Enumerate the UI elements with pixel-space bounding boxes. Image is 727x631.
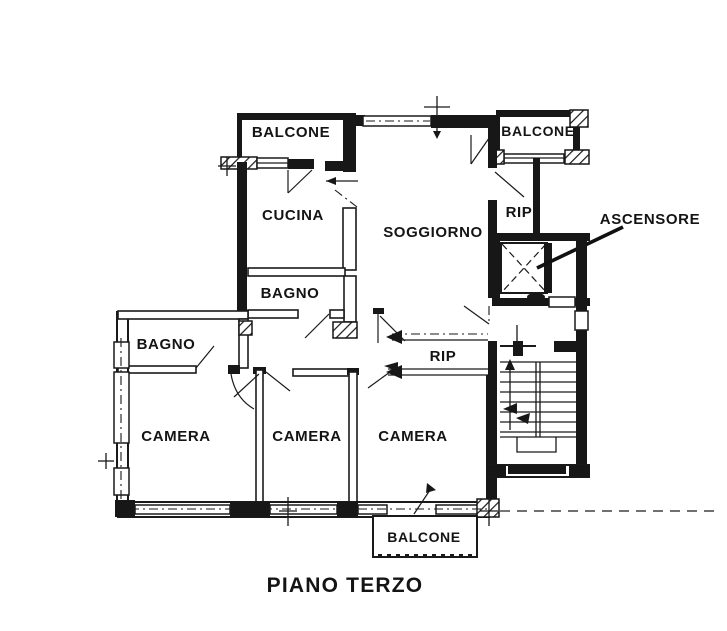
floorplan-drawing: ASCENSORE: [0, 0, 727, 631]
soggiorno-top-wall: [343, 113, 498, 172]
camera-right-label: CAMERA: [378, 428, 447, 445]
stair-direction-arrow: [503, 359, 530, 430]
survey-mark-left-wall: [98, 453, 114, 469]
entrance-door-swing: [464, 306, 489, 325]
door-swing-cucina-balcone: [288, 170, 358, 207]
rip-top-label: RIP: [506, 204, 533, 221]
cucina-label: CUCINA: [262, 207, 324, 224]
balcone-top-right-label: BALCONE: [501, 123, 574, 139]
right-outer-wall: [575, 241, 588, 467]
camera-center-label: CAMERA: [272, 428, 341, 445]
door-swing-camera-balcone: [414, 483, 436, 514]
ascensore-label: ASCENSORE: [600, 211, 700, 228]
rip-top-room: [495, 158, 540, 235]
stair-treads: [500, 362, 576, 437]
left-exterior-wall: [98, 311, 129, 503]
floor-title: PIANO TERZO: [267, 574, 424, 597]
soggiorno-label: SOGGIORNO: [383, 224, 483, 241]
stairwell-bottom-wall: [490, 465, 590, 477]
apartment-right-wall: [486, 128, 497, 502]
rip-hall-label: RIP: [430, 348, 457, 365]
camera-left-label: CAMERA: [141, 428, 210, 445]
balcone-bottom-label: BALCONE: [387, 529, 460, 545]
bagno-left-label: BAGNO: [137, 336, 196, 353]
floorplan-page: ASCENSORE: [0, 0, 727, 631]
bagno-upper-label: BAGNO: [261, 285, 320, 302]
balcone-top-left-label: BALCONE: [252, 124, 330, 141]
elevator-door: [544, 243, 552, 293]
